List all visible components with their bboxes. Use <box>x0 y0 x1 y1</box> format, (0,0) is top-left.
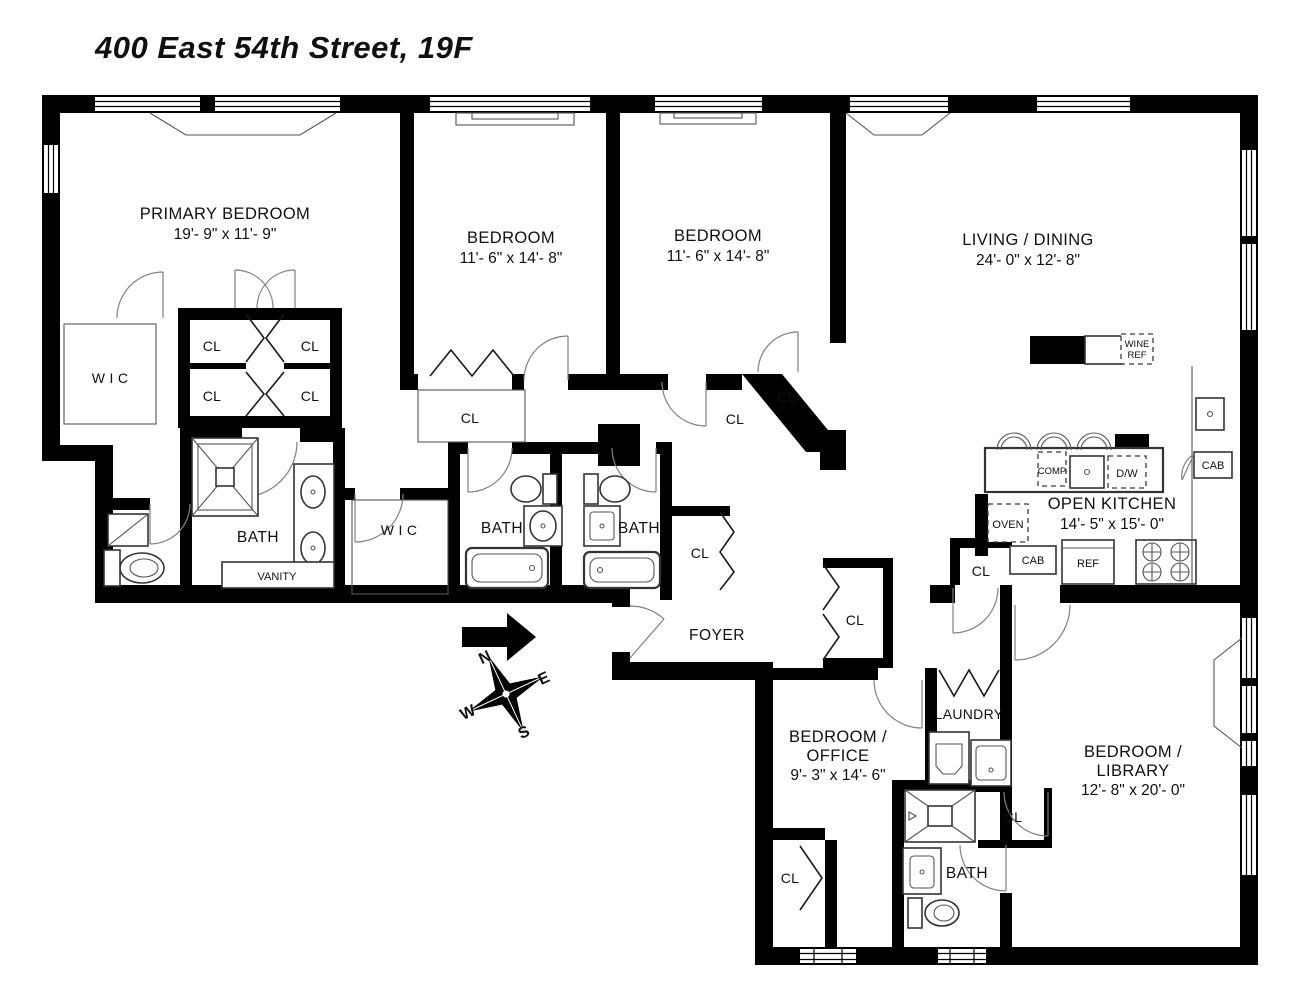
dryer-icon <box>971 740 1011 786</box>
label-dw: D/W <box>1116 468 1138 480</box>
label-cl: CL <box>726 411 745 427</box>
room-dims-primary-bedroom: 19'- 9" x 11'- 9" <box>174 226 277 243</box>
window <box>95 97 200 111</box>
bathtub-icon <box>466 548 548 588</box>
bifold-door <box>266 314 284 362</box>
shower-icon <box>905 790 975 842</box>
bifold-door <box>246 314 264 362</box>
label-oven: OVEN <box>992 519 1023 531</box>
room-label-bedroom-office-2: OFFICE <box>807 747 870 765</box>
door-arc <box>953 588 998 633</box>
washer-icon <box>929 732 969 784</box>
bifold-door <box>720 512 734 590</box>
label-wine-ref-2: REF <box>1128 350 1147 361</box>
fixtures <box>64 324 1232 928</box>
window <box>1242 795 1256 875</box>
label-cab: CAB <box>1022 555 1045 567</box>
room-label-bedroom-library-1: BEDROOM / <box>1084 743 1182 761</box>
sink-icon <box>584 506 620 546</box>
door-arc <box>874 680 922 728</box>
room-dims-bedroom-1: 11'- 6" x 14'- 8" <box>460 250 563 267</box>
window <box>938 949 986 963</box>
label-bath: BATH <box>618 520 660 537</box>
room-label-foyer: FOYER <box>689 627 745 644</box>
window <box>850 97 948 111</box>
sink-icon <box>524 506 562 546</box>
room-dims-bedroom-office: 9'- 3" x 14'- 6" <box>790 767 885 784</box>
door-arc <box>1015 605 1070 660</box>
floor-plan-drawing: 400 East 54th Street, 19F <box>0 0 1298 1000</box>
toilet-icon <box>908 898 959 928</box>
sink-icon <box>1196 398 1224 430</box>
door-arc <box>524 336 568 380</box>
label-bath: BATH <box>946 865 988 882</box>
corner-shower-icon <box>108 514 148 546</box>
window <box>1242 618 1256 766</box>
label-cl: CL <box>203 388 222 404</box>
room-label-bedroom-office-1: BEDROOM / <box>789 728 887 746</box>
window <box>800 949 856 963</box>
label-cl: CL <box>203 338 222 354</box>
entry-door-arc <box>630 606 664 658</box>
window <box>44 145 58 193</box>
vanity-counter <box>294 464 334 566</box>
toilet-icon <box>584 474 630 504</box>
entry-arrow-icon <box>462 613 536 661</box>
toilet-icon <box>104 550 164 586</box>
label-cl: CL <box>781 870 800 886</box>
room-label-open-kitchen: OPEN KITCHEN <box>1048 495 1177 513</box>
bifold-door <box>800 846 822 910</box>
window <box>430 97 590 111</box>
sink-icon <box>1070 456 1104 488</box>
label-cl: CL <box>691 545 710 561</box>
bay-window-detail <box>1214 638 1242 748</box>
page-title: 400 East 54th Street, 19F <box>94 30 473 65</box>
label-cl: CL <box>1004 809 1023 825</box>
label-comp: COMP <box>1038 466 1067 477</box>
room-dims-bedroom-2: 11'- 6" x 14'- 8" <box>667 248 770 265</box>
room-dims-open-kitchen: 14'- 5" x 15'- 0" <box>1060 516 1164 533</box>
door-arc <box>468 448 512 492</box>
label-cl: CL <box>972 563 991 579</box>
label-cl: CL <box>301 338 320 354</box>
shower-icon <box>192 438 258 516</box>
compass-rose: N E W S <box>450 638 562 750</box>
label-cl: CL <box>778 389 797 405</box>
toilet-icon <box>511 474 557 504</box>
window <box>655 97 762 111</box>
bay-window-detail <box>846 113 950 135</box>
sink-icon <box>903 848 941 894</box>
label-wine-ref-1: WINE <box>1125 339 1150 350</box>
bay-window-detail <box>150 113 336 135</box>
bathtub-icon <box>584 552 660 588</box>
label-ref: REF <box>1077 558 1099 570</box>
door-arc <box>257 270 295 308</box>
door-arc <box>117 272 163 318</box>
room-label-laundry: LAUNDRY <box>935 706 1004 722</box>
label-bath: BATH <box>481 520 523 537</box>
compass-s: S <box>516 723 533 743</box>
room-label-bedroom-library-2: LIBRARY <box>1096 762 1169 780</box>
bifold-door <box>939 670 999 696</box>
door-arc <box>235 270 273 308</box>
label-vanity: VANITY <box>258 571 298 583</box>
label-cl: CL <box>301 388 320 404</box>
room-label-bedroom-1: BEDROOM <box>467 229 555 247</box>
room-dims-bedroom-library: 12'- 8" x 20'- 0" <box>1081 782 1185 799</box>
stove-icon <box>1136 540 1196 584</box>
window <box>1037 97 1130 111</box>
room-label-primary-bedroom: PRIMARY BEDROOM <box>140 205 310 223</box>
window <box>1242 150 1256 330</box>
bifold-door <box>823 564 839 610</box>
compass-w: W <box>458 702 480 724</box>
floor-plan-page: 400 East 54th Street, 19F <box>0 0 1298 1000</box>
bifold-door <box>430 350 514 376</box>
bifold-door <box>266 372 284 416</box>
door-arc <box>758 332 798 372</box>
closet-rod-line <box>352 500 448 594</box>
bifold-door <box>823 614 839 660</box>
diagonal-wall <box>742 374 846 452</box>
door-arc <box>662 382 706 426</box>
bifold-door <box>246 372 264 416</box>
room-label-bedroom-2: BEDROOM <box>674 227 762 245</box>
label-wic: W I C <box>381 522 418 538</box>
label-bath: BATH <box>237 529 279 546</box>
compass-star <box>450 638 562 750</box>
room-dims-living-dining: 24'- 0" x 12'- 8" <box>976 252 1080 269</box>
label-cl: CL <box>461 410 480 426</box>
label-wic: W I C <box>92 370 129 386</box>
compass-e: E <box>536 669 553 689</box>
window <box>215 97 340 111</box>
label-cl: CL <box>846 612 865 628</box>
room-label-living-dining: LIVING / DINING <box>962 231 1094 249</box>
label-cab: CAB <box>1202 460 1225 472</box>
kitchen-bar-counter <box>1085 336 1123 364</box>
